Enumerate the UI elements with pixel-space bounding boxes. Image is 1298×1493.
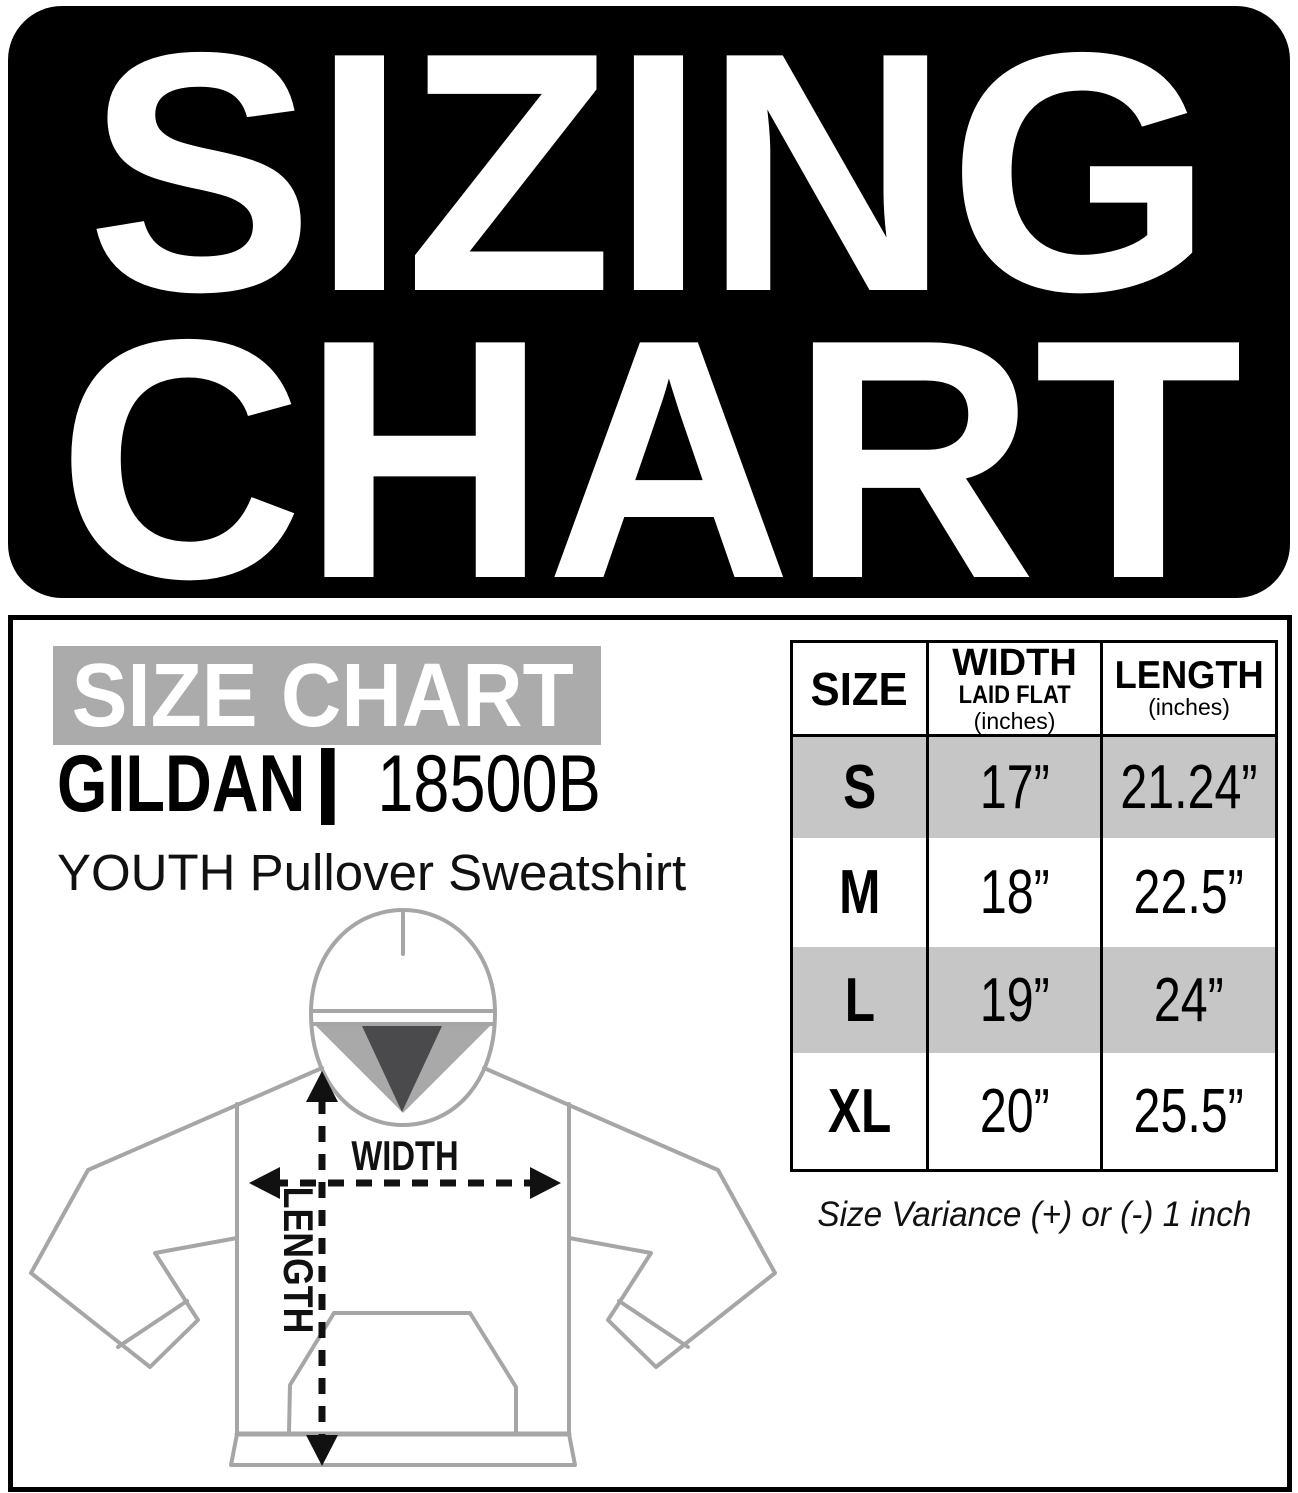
header-length-label: LENGTH [1114,657,1263,695]
table-row-m-width: 18” [929,838,1103,947]
row-l-width: 19” [980,965,1050,1036]
table-row-m-size: M [793,838,929,947]
brand-divider-bar [321,748,335,825]
size-table-header-length: LENGTH (inches) [1103,643,1275,737]
header-width-label: WIDTH [952,644,1077,682]
row-m-length: 22.5” [1134,857,1244,928]
brand-line: GILDAN18500B [57,744,737,825]
table-row-l-width: 19” [929,947,1103,1053]
row-m-size: M [839,857,880,928]
row-l-size: L [844,965,874,1036]
model-number: 18500B [377,739,600,829]
row-xl-length: 25.5” [1134,1076,1244,1147]
size-table-header-width: WIDTH LAID FLAT (inches) [929,643,1103,737]
table-row-l-length: 24” [1103,947,1275,1053]
table-row-s-width: 17” [929,737,1103,838]
row-l-length: 24” [1154,965,1224,1036]
size-chart-heading: SIZE CHART [53,651,574,741]
row-xl-size: XL [828,1076,891,1147]
table-row-s-length: 21.24” [1103,737,1275,838]
table-row-s-size: S [793,737,929,838]
header-size-label: SIZE [811,662,908,716]
row-xl-width: 20” [980,1076,1050,1147]
brand-name: GILDAN [57,739,305,829]
header-length-unit: (inches) [1148,695,1230,720]
row-s-length: 21.24” [1120,752,1257,823]
size-chart-heading-bar: SIZE CHART [53,646,601,745]
size-table: SIZE WIDTH LAID FLAT (inches) LENGTH (in… [790,640,1278,1172]
size-table-header-size: SIZE [793,643,929,737]
header-width-sublabel: LAID FLAT [958,682,1070,709]
size-variance-note: Size Variance (+) or (-) 1 inch [790,1195,1278,1235]
table-row-l-size: L [793,947,929,1053]
title-line-2: CHART [8,289,1290,630]
table-row-xl-length: 25.5” [1103,1053,1275,1169]
table-row-xl-width: 20” [929,1053,1103,1169]
table-row-m-length: 22.5” [1103,838,1275,947]
size-variance-note-text: Size Variance (+) or (-) 1 inch [817,1195,1251,1235]
row-m-width: 18” [980,857,1050,928]
sizing-chart-title-plate: SIZING CHART [8,6,1290,598]
header-width-unit: (inches) [974,709,1056,734]
product-description: YOUTH Pullover Sweatshirt [57,847,686,898]
row-s-size: S [843,752,876,823]
table-row-xl-size: XL [793,1053,929,1169]
row-s-width: 17” [980,752,1050,823]
